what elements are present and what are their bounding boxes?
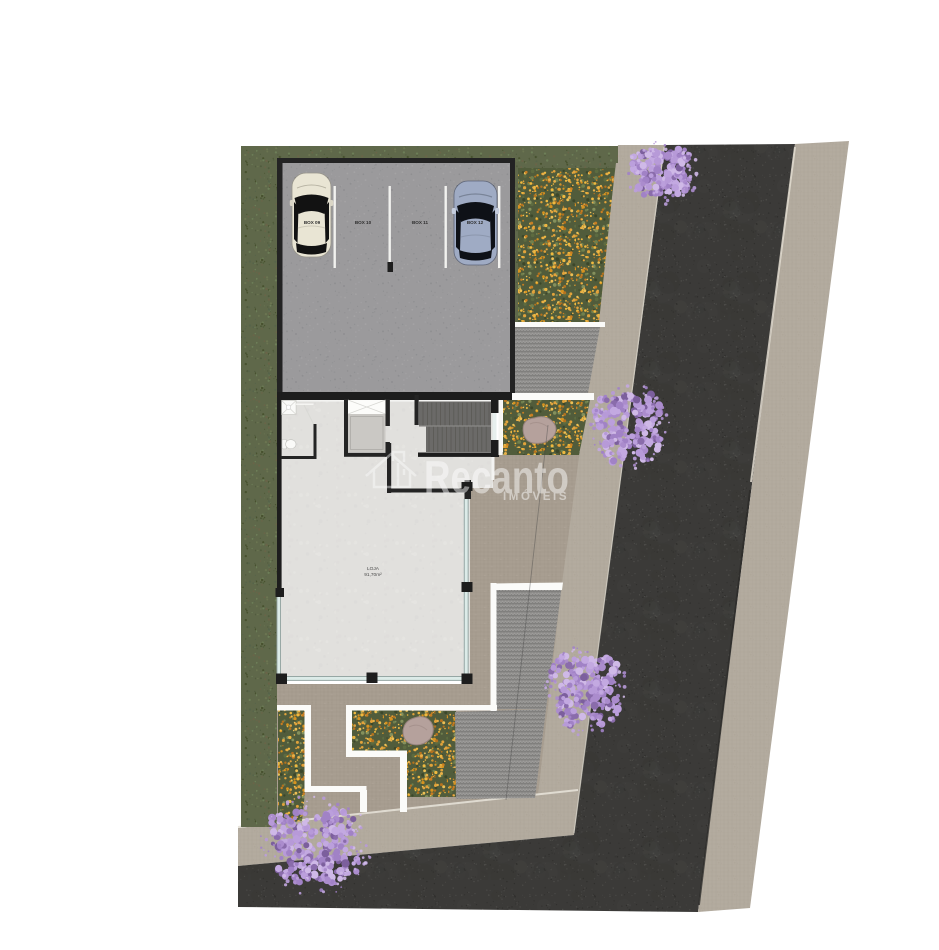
- svg-text:IMÓVEIS: IMÓVEIS: [503, 490, 569, 503]
- svg-text:BOX 09: BOX 09: [304, 220, 321, 225]
- svg-text:BOX 11: BOX 11: [412, 220, 429, 225]
- svg-text:BOX 10: BOX 10: [355, 220, 372, 225]
- svg-text:BOX 12: BOX 12: [467, 220, 484, 225]
- svg-text:91,70m²: 91,70m²: [364, 572, 382, 578]
- svg-text:LOJA: LOJA: [367, 566, 380, 572]
